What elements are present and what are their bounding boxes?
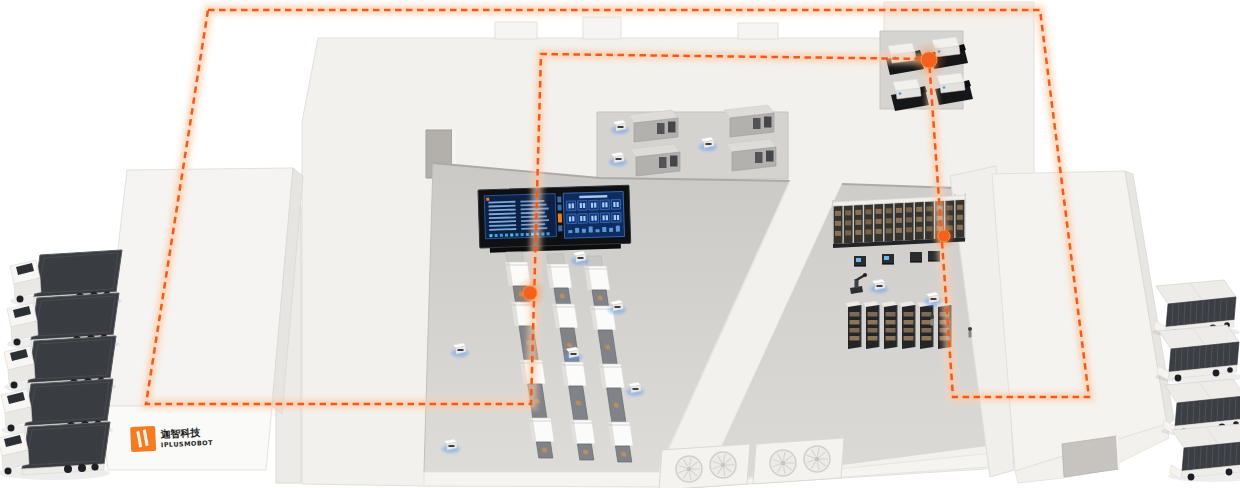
waypoint-dot — [523, 286, 537, 300]
worker — [968, 327, 972, 338]
roof-tab — [738, 23, 778, 39]
left-dock-trucks — [0, 250, 122, 480]
mezzanine-machine — [724, 105, 774, 137]
charging-dock — [910, 252, 922, 263]
dock-screen — [884, 256, 889, 260]
dock-truck — [1168, 424, 1240, 482]
hvac-unit — [753, 438, 844, 484]
control-dashboard-screen — [478, 185, 631, 253]
dock-screen — [856, 258, 861, 262]
left-building-roof — [100, 168, 293, 406]
logo-text-cn: 迦智科技 — [160, 427, 201, 440]
factory-illustration: 迦智科技 IPLUSMOBOT — [0, 0, 1240, 488]
mezzanine-machine — [726, 139, 776, 171]
left-warehouse-building: 迦智科技 IPLUSMOBOT — [100, 168, 303, 470]
waypoint-dot — [938, 230, 950, 242]
hvac-unit — [659, 444, 750, 488]
scene-svg: 迦智科技 IPLUSMOBOT — [0, 0, 1240, 488]
logo-icon — [130, 426, 156, 452]
roof-tab — [495, 22, 537, 39]
waypoint-dot — [921, 52, 937, 68]
mezzanine-machine — [628, 110, 678, 142]
dashboard — [478, 185, 631, 253]
mezzanine-machine — [630, 144, 680, 176]
roof-tab — [583, 17, 621, 39]
dock-truck — [1155, 325, 1240, 383]
worker — [930, 315, 934, 326]
